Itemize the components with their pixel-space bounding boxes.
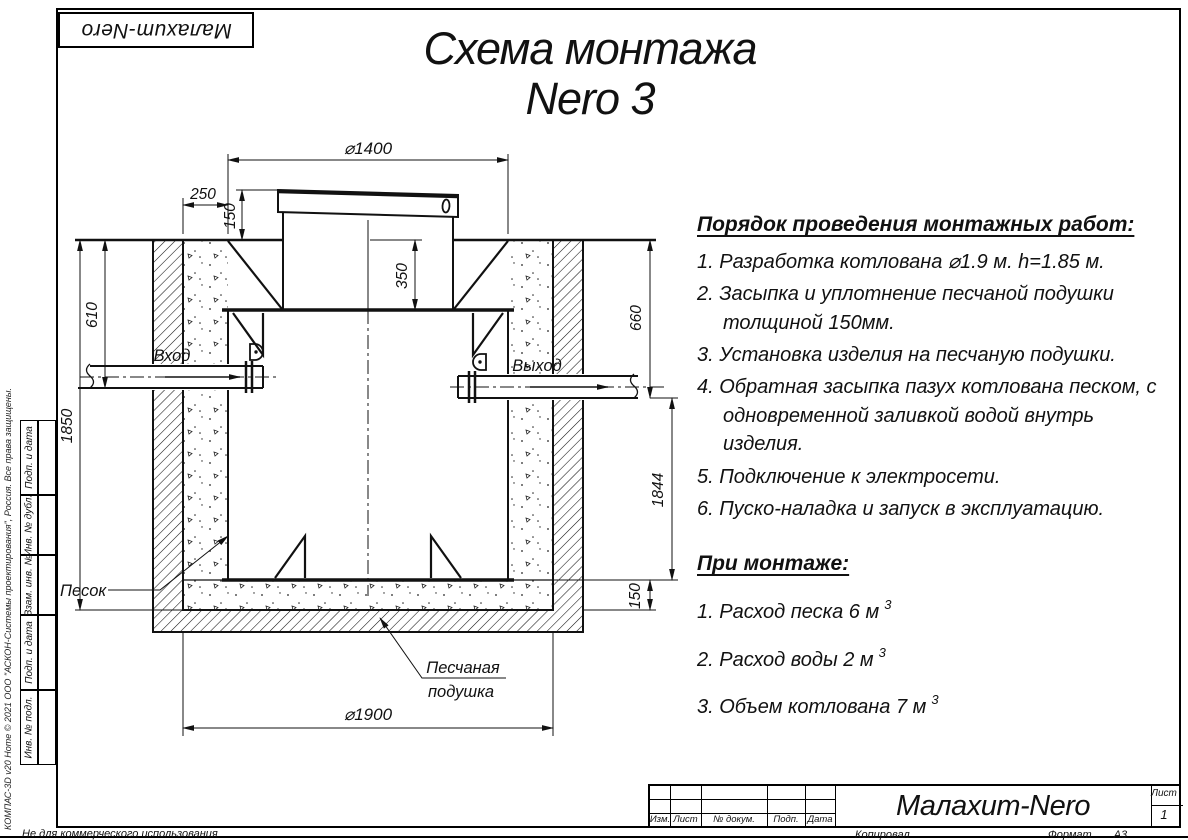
consumption-item: 2. Расход воды 2 м3 [697,644,1163,674]
installation-instructions: Порядок проведения монтажных работ: 1. Р… [697,210,1163,721]
instructions-heading: Порядок проведения монтажных работ: [697,210,1163,240]
drawing-sheet: Малахит-Nero Схема монтажа Nero 3 Подп. … [0,0,1188,840]
stamp-cell-empty [38,690,56,765]
instruction-step: 4. Обратная засыпка пазух котлована песк… [697,373,1163,458]
consumption-item: 3. Объем котлована 7 м3 [697,691,1163,721]
title-line1: Схема монтажа [370,24,810,74]
tb-col-list: Лист [670,813,701,826]
copied-by-label: Копировал [855,829,910,840]
consumption-item: 1. Расход песка 6 м3 [697,596,1163,626]
stamp-cell-inv-podl: Инв. № подл. [20,690,38,765]
instruction-step: 6. Пуско-наладка и запуск в эксплуатацию… [697,495,1163,523]
superscript: 3 [879,645,886,660]
during-installation-heading: При монтаже: [697,549,1163,579]
stamp-cell-empty [38,495,56,555]
stamp-cell-podp-data-1: Подп. и дата [20,420,38,495]
instruction-step: 2. Засыпка и уплотнение песчаной подушки… [697,280,1163,337]
stamp-cell-empty [38,420,56,495]
instruction-step: 3. Установка изделия на песчаную подушки… [697,341,1163,369]
title-block: Изм. Лист № докум. Подп. Дата Малахит-Ne… [648,784,1181,828]
tb-col-izm: Изм. [650,813,670,826]
instruction-step: 5. Подключение к электросети. [697,463,1163,491]
tb-sheet-label: Лист [1149,788,1179,799]
stamp-cell-empty [38,615,56,690]
tb-sheet-number: 1 [1149,807,1179,822]
kompas-copyright-vertical: КОМПАС-3D v20 Home © 2021 ООО "АСКОН-Сис… [3,400,13,830]
stamp-cell-vzam-inv: Взам. инв. № [20,555,38,615]
instruction-step: 1. Разработка котлована ⌀1.9 м. h=1.85 м… [697,248,1163,276]
tb-col-podp: Подп. [767,813,805,826]
title-line2: Nero 3 [370,74,810,124]
tb-product-name: Малахит-Nero [835,786,1151,826]
tb-col-docnum: № докум. [701,813,767,826]
superscript: 3 [931,692,938,707]
logo-text-rotated: Малахит-Nero [81,18,232,42]
stamp-cell-empty [38,555,56,615]
stamp-cell-podp-data-2: Подп. и дата [20,615,38,690]
not-for-commercial-note: Не для коммерческого использования [22,828,218,840]
format-label: ФорматА3 [1048,829,1127,840]
format-value: А3 [1114,829,1127,840]
tb-col-data: Дата [805,813,835,826]
logo-box: Малахит-Nero [58,12,254,48]
page-title: Схема монтажа Nero 3 [370,24,810,125]
superscript: 3 [884,597,891,612]
stamp-cell-inv-dubl: Инв. № дубл. [20,495,38,555]
